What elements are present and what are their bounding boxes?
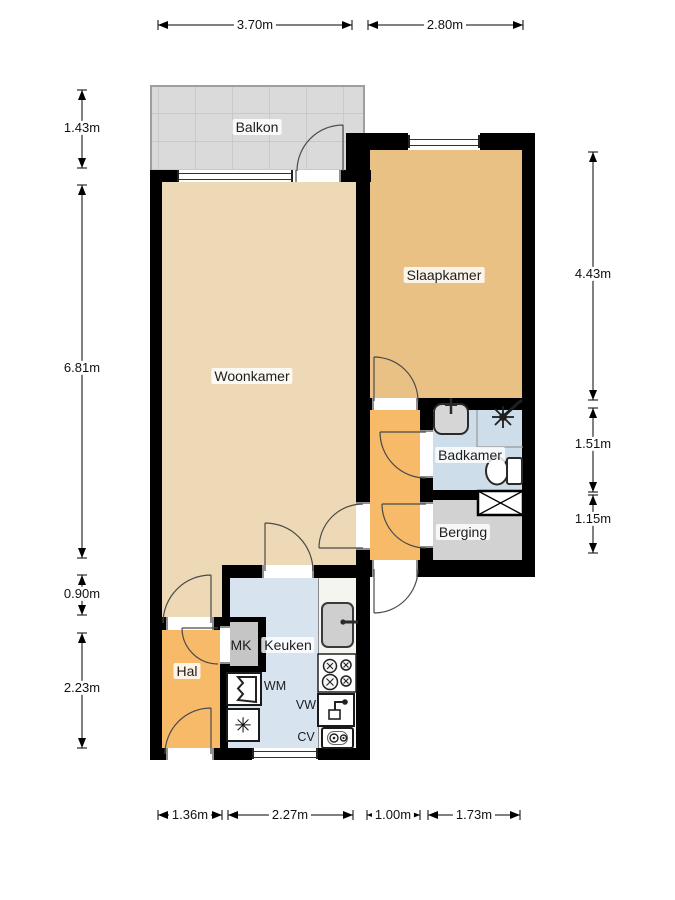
kitchen-counter bbox=[318, 578, 357, 748]
door-opening-hal-woonkamer bbox=[166, 617, 214, 630]
freezer-icon: ✳ bbox=[234, 716, 252, 737]
wall-segment bbox=[356, 560, 372, 577]
dimension-label-left-3: 0.90m bbox=[61, 587, 103, 601]
wall-segment bbox=[356, 150, 370, 502]
window-slaapkamer bbox=[408, 135, 480, 148]
wall-segment bbox=[214, 748, 252, 760]
room-woonkamer-lower bbox=[162, 565, 222, 617]
window-balcony bbox=[177, 170, 293, 182]
wall-segment bbox=[150, 617, 166, 630]
window-pane bbox=[179, 173, 291, 180]
wall-segment bbox=[356, 398, 372, 410]
dimension-label-bottom-3: 1.00m bbox=[372, 808, 414, 822]
door-opening-berging bbox=[420, 502, 433, 548]
label-berging: Berging bbox=[436, 524, 490, 540]
label-mk: MK bbox=[228, 637, 255, 653]
label-keuken: Keuken bbox=[261, 637, 314, 653]
front-door-opening bbox=[166, 748, 214, 760]
label-wm: WM bbox=[261, 679, 289, 693]
wall-segment bbox=[220, 664, 230, 672]
wall-segment bbox=[150, 170, 177, 182]
door-opening-badkamer bbox=[420, 430, 433, 478]
label-vw: VW bbox=[293, 698, 319, 712]
dimension-label-top-1: 3.70m bbox=[234, 18, 276, 32]
wall-segment bbox=[220, 617, 230, 626]
label-hal: Hal bbox=[173, 663, 200, 679]
wall-segment bbox=[346, 133, 408, 150]
wall-segment bbox=[418, 560, 535, 577]
room-hal bbox=[162, 630, 220, 748]
wall-segment bbox=[318, 748, 370, 760]
dimension-label-bottom-2: 2.27m bbox=[269, 808, 311, 822]
window-pane bbox=[410, 139, 478, 146]
wall-segment bbox=[356, 577, 370, 760]
label-cv: CV bbox=[294, 730, 317, 744]
floor-plan: ✳ Balkon Woonkamer Slaapkamer Badkamer B… bbox=[0, 0, 675, 900]
room-corridor bbox=[370, 410, 420, 560]
dimension-label-left-1: 1.43m bbox=[61, 121, 103, 135]
dimension-label-top-2: 2.80m bbox=[424, 18, 466, 32]
wall-segment bbox=[522, 133, 535, 577]
dimension-label-right-3: 1.15m bbox=[572, 512, 614, 526]
window-keuken bbox=[252, 748, 318, 759]
dimension-label-bottom-1: 1.36m bbox=[169, 808, 211, 822]
door-opening-balcony bbox=[295, 170, 341, 182]
label-slaapkamer: Slaapkamer bbox=[404, 267, 485, 283]
wall-segment bbox=[420, 478, 433, 502]
wall-segment bbox=[150, 748, 166, 760]
wall-segment bbox=[314, 565, 356, 578]
door-opening-woonkamer-corridor bbox=[356, 502, 370, 550]
dimension-label-left-4: 2.23m bbox=[61, 681, 103, 695]
washing-machine-box bbox=[226, 672, 262, 706]
wall-segment bbox=[418, 398, 535, 410]
dimension-label-right-2: 1.51m bbox=[572, 437, 614, 451]
dimension-label-right-1: 4.43m bbox=[572, 267, 614, 281]
window-pane bbox=[254, 751, 316, 758]
door-opening-keuken bbox=[262, 565, 314, 578]
dimension-label-bottom-4: 1.73m bbox=[453, 808, 495, 822]
door-opening-corridor-exit bbox=[372, 560, 418, 577]
label-badkamer: Badkamer bbox=[435, 447, 505, 463]
wall-segment bbox=[222, 565, 230, 617]
door-opening-slaapkamer bbox=[372, 398, 418, 410]
wall-segment bbox=[433, 490, 522, 500]
wall-segment bbox=[420, 548, 433, 560]
dimension-label-left-2: 6.81m bbox=[61, 361, 103, 375]
label-balkon: Balkon bbox=[233, 119, 282, 135]
wall-segment bbox=[150, 170, 162, 760]
wall-segment bbox=[420, 410, 433, 430]
label-woonkamer: Woonkamer bbox=[211, 368, 292, 384]
